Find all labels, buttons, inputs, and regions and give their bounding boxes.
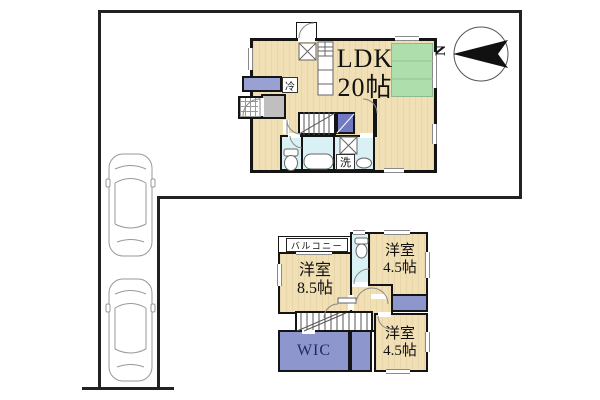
door-gap [302, 329, 315, 334]
toilet-room-1f [280, 135, 303, 171]
window [353, 230, 365, 235]
entrance-hall [261, 94, 286, 119]
window [384, 168, 404, 173]
ldk-label: LDK 20帖 [319, 44, 411, 102]
door-gap [360, 133, 373, 138]
door-gap [348, 295, 354, 310]
closet-north [391, 294, 428, 312]
north-label: N [433, 45, 450, 56]
bedroom-45s-size: 4.5帖 [376, 343, 424, 360]
window [432, 52, 437, 88]
window [425, 252, 430, 278]
laundry-label: 洗 [340, 154, 351, 170]
boundary-inner-line [157, 196, 160, 389]
door-gap [298, 36, 315, 42]
understair-storage [336, 112, 355, 134]
closet-south [350, 330, 372, 372]
wic-label: WIC [288, 342, 340, 360]
bedroom-85-size: 8.5帖 [282, 280, 348, 298]
door-gap [378, 312, 391, 317]
ldk-size: 20帖 [319, 73, 411, 102]
fridge-label: 冷 [285, 78, 295, 93]
car-icon [106, 154, 155, 381]
bedroom-45s-name: 洋室 [376, 326, 424, 343]
door-gap [371, 294, 386, 299]
window [384, 230, 410, 235]
boundary-top-line [98, 10, 522, 13]
door-gap [283, 120, 289, 134]
floorplan-canvas: 冷 [0, 0, 600, 400]
door-gap [258, 98, 264, 116]
window [248, 48, 253, 70]
bedroom-45n-label: 洋室 4.5帖 [376, 243, 424, 277]
window [395, 36, 419, 41]
bedroom-45n-name: 洋室 [376, 243, 424, 260]
staircase-1f [298, 112, 336, 135]
shoe-cabinet [242, 76, 282, 92]
balcony-label-box: バルコニー [286, 238, 348, 252]
balcony-label: バルコニー [291, 239, 343, 252]
boundary-left-line [98, 10, 101, 389]
corridor-wall [373, 99, 377, 137]
ldk-name: LDK [319, 44, 411, 73]
boundary-road-line [82, 387, 174, 390]
bathroom [301, 135, 335, 171]
bedroom-85-name: 洋室 [282, 262, 348, 280]
bedroom-45s-label: 洋室 4.5帖 [376, 326, 424, 360]
door-gap [352, 282, 368, 287]
north-compass-icon [453, 27, 508, 81]
door-gap [288, 133, 300, 138]
window [386, 369, 410, 374]
boundary-right-line [519, 10, 522, 199]
bedroom-45n-size: 4.5帖 [376, 260, 424, 277]
bedroom-85-label: 洋室 8.5帖 [282, 262, 348, 298]
window [432, 124, 437, 144]
window [425, 332, 430, 352]
fridge-symbol: 冷 [282, 77, 298, 93]
boundary-mid-line [157, 196, 522, 199]
toilet-room-2f [350, 232, 370, 286]
laundry-symbol: 洗 [336, 154, 355, 170]
